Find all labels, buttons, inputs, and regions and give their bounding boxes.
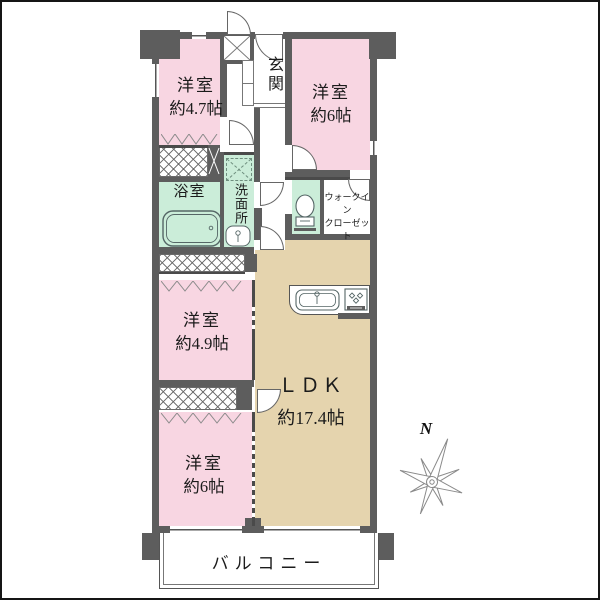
compass: N xyxy=(382,416,482,526)
wall-bedroom6top-bottom xyxy=(292,170,350,177)
room-name: 洋室 xyxy=(152,310,252,331)
duct-x-block xyxy=(208,145,220,177)
wall-strip-mid-bottom xyxy=(159,272,245,274)
closet-strip-mid xyxy=(159,254,245,272)
wall-strip-bottom-chunk xyxy=(237,387,252,410)
room-name: ＬＤＫ xyxy=(255,374,367,399)
wall-washroom-top xyxy=(224,152,254,155)
toilet-icon xyxy=(291,193,321,233)
closet-strip-top xyxy=(159,145,208,177)
room-size: 約4.7帖 xyxy=(150,99,242,120)
room-name: 洋室 xyxy=(286,82,376,103)
door-arc-washroom xyxy=(260,182,284,206)
wall-corridor-left-upper xyxy=(254,107,260,182)
wall-top-right xyxy=(283,32,377,39)
window-right-small xyxy=(370,141,377,155)
label-bathroom: 浴室 xyxy=(159,183,220,202)
room-size: 約6帖 xyxy=(286,106,376,127)
washer-space-x-icon xyxy=(227,159,251,180)
pipe-shaft-x-icon xyxy=(224,36,250,60)
shoe-cabinet xyxy=(242,60,254,106)
label-bedroom-6-top: 洋室 約6帖 xyxy=(286,82,376,127)
zigzag-bedroom47 xyxy=(161,134,218,145)
wic-line2: クローゼット xyxy=(321,217,373,243)
label-washroom: 洗面所 xyxy=(231,183,250,225)
window-balcony-left xyxy=(170,526,242,533)
pillar-top-left xyxy=(140,30,180,59)
room-size: 約4.9帖 xyxy=(152,334,252,355)
label-ldk: ＬＤＫ 約17.4帖 xyxy=(255,374,367,430)
zigzag-bedroom49 xyxy=(161,281,243,292)
label-bedroom-4-7: 洋室 約4.7帖 xyxy=(150,75,242,120)
room-name: 洋室 xyxy=(154,453,254,474)
washer-space-box xyxy=(226,158,252,181)
wall-bath-bottom xyxy=(159,247,254,254)
sliding-door-bedroom49 xyxy=(252,307,255,333)
zigzag-bedroom6b xyxy=(161,413,243,424)
bathtub-icon xyxy=(162,210,222,248)
compass-rose-icon: N xyxy=(382,416,482,526)
wall-toilet-top xyxy=(285,177,324,180)
kitchen-sink-icon xyxy=(295,288,341,312)
door-arc-bedroom-4-7 xyxy=(229,120,254,145)
window-top-tick-2 xyxy=(192,32,206,39)
label-bedroom-6-bottom: 洋室 約6帖 xyxy=(154,453,254,498)
wall-bath-top xyxy=(159,177,220,182)
wall-strip-mid-chunk xyxy=(245,254,257,272)
pillar-top-right xyxy=(369,32,396,59)
window-balcony-right xyxy=(264,526,360,533)
washbasin-icon xyxy=(224,224,252,248)
label-wic: ウォークイン クローゼット xyxy=(321,191,373,243)
duct-x-icon xyxy=(208,145,220,177)
genkan-step-line xyxy=(254,103,285,108)
floor-plan: 洋室 約4.7帖 洋室 約6帖 玄関 浴室 洗面所 ウォークイン クローゼット … xyxy=(0,0,600,600)
stove-icon xyxy=(344,288,368,314)
counter-return-wall xyxy=(338,313,370,319)
wic-line1: ウォークイン xyxy=(321,191,373,217)
room-size: 約6帖 xyxy=(154,477,254,498)
label-balcony: バルコニー xyxy=(159,553,379,574)
closet-strip-bottom xyxy=(159,387,237,410)
label-bedroom-4-9: 洋室 約4.9帖 xyxy=(152,310,252,355)
door-arc-ldk xyxy=(260,226,284,250)
room-size: 約17.4帖 xyxy=(255,407,367,430)
door-arc-ps-outward xyxy=(227,11,251,35)
wall-wic-top xyxy=(324,177,350,180)
room-name: 洋室 xyxy=(150,75,242,96)
label-genkan: 玄関 xyxy=(261,56,285,94)
wall-bedroom49-bottom xyxy=(159,380,254,387)
compass-north-text: N xyxy=(419,419,433,438)
